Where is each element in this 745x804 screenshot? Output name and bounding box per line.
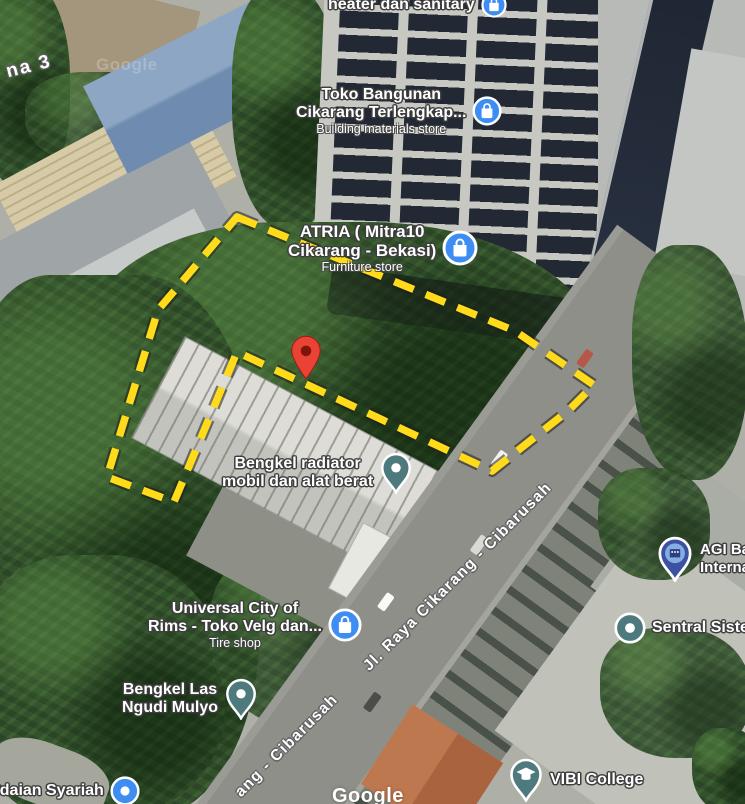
poi-pegadaian-name: ndaian Syariah [0,782,104,800]
poi-bengkel-radiator[interactable]: Bengkel radiator mobil dan alat berat [222,452,413,494]
google-watermark: Google [332,785,404,804]
place-circle-icon [614,612,646,644]
poi-las-name-line2: Ngudi Mulyo [122,699,218,717]
poi-toko-category: Building materials store [316,122,446,136]
poi-agi-bank[interactable]: AGI Ba Interna [656,536,745,582]
place-pin-icon [224,678,258,720]
poi-vibi-college[interactable]: VIBI College [508,758,643,802]
bank-icon [656,536,694,582]
graduation-cap-icon [508,758,544,802]
place-pin-icon [379,452,413,494]
poi-universal-name-line1: Universal City of [172,600,298,618]
shopping-bag-icon [328,608,362,642]
poi-atria-name-line1: ATRIA ( Mitra10 [300,222,425,241]
poi-universal-name-line2: Rims - Toko Velg dan... [148,618,322,636]
poi-vibi-name: VIBI College [550,771,643,789]
map-canvas[interactable]: heater dan sanitary Toko Bangunan Cikara… [0,0,745,804]
poi-bengkel-las[interactable]: Bengkel Las Ngudi Mulyo [122,678,258,720]
poi-pegadaian[interactable]: ndaian Syariah [0,776,140,804]
shopping-bag-icon [442,230,478,266]
poi-heater-name: heater dan sanitary [328,0,475,14]
place-circle-icon [110,776,140,804]
poi-toko-name-line1: Toko Bangunan [321,86,441,104]
poi-atria[interactable]: ATRIA ( Mitra10 Cikarang - Bekasi) Furni… [288,222,478,275]
poi-radiator-name-line1: Bengkel radiator [234,455,360,473]
poi-toko-name-line2: Cikarang Terlengkap... [296,104,466,122]
poi-universal-category: Tire shop [209,636,261,650]
poi-agi-name-line2: Interna [700,559,745,577]
shopping-bag-icon [472,96,502,126]
poi-toko-bangunan[interactable]: Toko Bangunan Cikarang Terlengkap... Bui… [296,86,502,136]
poi-sentral[interactable]: Sentral Sister [614,612,745,644]
poi-universal-city[interactable]: Universal City of Rims - Toko Velg dan..… [148,600,362,650]
poi-agi-name-line1: AGI Ba [700,541,745,559]
poi-las-name-line1: Bengkel Las [123,681,217,699]
poi-atria-name-line2: Cikarang - Bekasi) [288,241,436,260]
location-pin[interactable] [289,335,323,381]
poi-sentral-name: Sentral Sister [652,619,745,637]
poi-radiator-name-line2: mobil dan alat berat [222,473,373,491]
poi-atria-category: Furniture store [322,260,403,274]
poi-heater-dan-sanitary[interactable]: heater dan sanitary [328,0,507,18]
shopping-bag-icon [481,0,507,18]
google-watermark-ghost: Google [96,55,158,75]
